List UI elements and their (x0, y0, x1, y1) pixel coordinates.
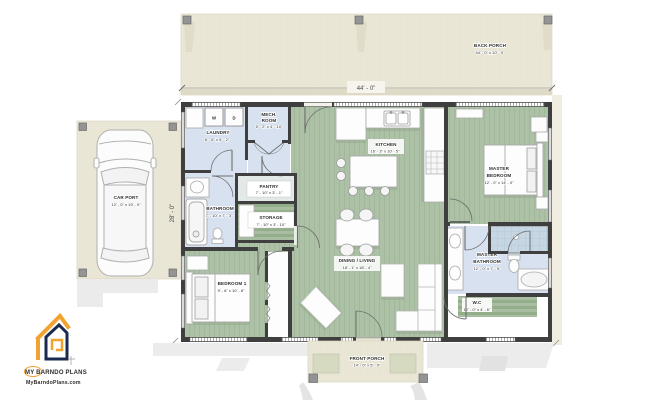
svg-text:W.C: W.C (473, 300, 483, 305)
svg-text:MASTER: MASTER (489, 166, 510, 171)
svg-text:MY BARNDO PLANS: MY BARNDO PLANS (25, 370, 87, 376)
svg-text:MECH.: MECH. (261, 112, 276, 117)
svg-text:FRONT PORCH: FRONT PORCH (350, 356, 385, 361)
svg-text:D: D (232, 116, 235, 121)
svg-text:5' - 2" x 4' - 10": 5' - 2" x 4' - 10" (256, 124, 283, 129)
svg-text:16' - 3" x 10' - 5": 16' - 3" x 10' - 5" (370, 149, 400, 154)
svg-text:BEDROOM: BEDROOM (487, 173, 512, 178)
svg-text:MyBarndoPlans.com: MyBarndoPlans.com (26, 380, 81, 386)
svg-text:DINING / LIVING: DINING / LIVING (339, 258, 376, 263)
svg-text:BATHROOM: BATHROOM (206, 206, 234, 211)
svg-text:STORAGE: STORAGE (259, 215, 282, 220)
svg-text:12' - 0" x 4' - 6": 12' - 0" x 4' - 6" (464, 307, 491, 312)
svg-text:44' - 0" x 10' - 0": 44' - 0" x 10' - 0" (475, 50, 505, 55)
svg-text:12' - 0" x 14' - 0": 12' - 0" x 14' - 0" (484, 180, 514, 185)
svg-text:7' - 10" x 3' - 1": 7' - 10" x 3' - 1" (256, 190, 283, 195)
svg-text:BEDROOM 1: BEDROOM 1 (218, 281, 247, 286)
svg-text:12' - 0" x 19' - 0": 12' - 0" x 19' - 0" (111, 202, 141, 207)
svg-text:KITCHEN: KITCHEN (375, 142, 397, 147)
svg-text:ROOM: ROOM (262, 118, 277, 123)
svg-text:7' - 10" x 7' - 3": 7' - 10" x 7' - 3" (206, 213, 233, 218)
svg-text:BATHROOM: BATHROOM (473, 259, 501, 264)
svg-text:7' - 10" x 3' - 10": 7' - 10" x 3' - 10" (256, 222, 286, 227)
svg-text:PANTRY: PANTRY (260, 184, 279, 189)
svg-text:18' - 1" x 18' - 4": 18' - 1" x 18' - 4" (342, 265, 372, 270)
svg-text:BACK PORCH: BACK PORCH (474, 43, 507, 48)
svg-text:LAUNDRY: LAUNDRY (207, 130, 230, 135)
svg-text:44' - 0": 44' - 0" (357, 86, 376, 92)
svg-text:9' - 6" x 10' - 8": 9' - 6" x 10' - 8" (218, 288, 245, 293)
svg-text:CAR PORT: CAR PORT (114, 195, 139, 200)
svg-text:6' - 6" x 5' - 2": 6' - 6" x 5' - 2" (205, 137, 230, 142)
svg-text:14' - 0" x 5' - 0": 14' - 0" x 5' - 0" (354, 363, 381, 368)
svg-text:12' - 0" x 7' - 5": 12' - 0" x 7' - 5" (474, 266, 501, 271)
svg-text:28' - 0": 28' - 0" (170, 204, 176, 223)
